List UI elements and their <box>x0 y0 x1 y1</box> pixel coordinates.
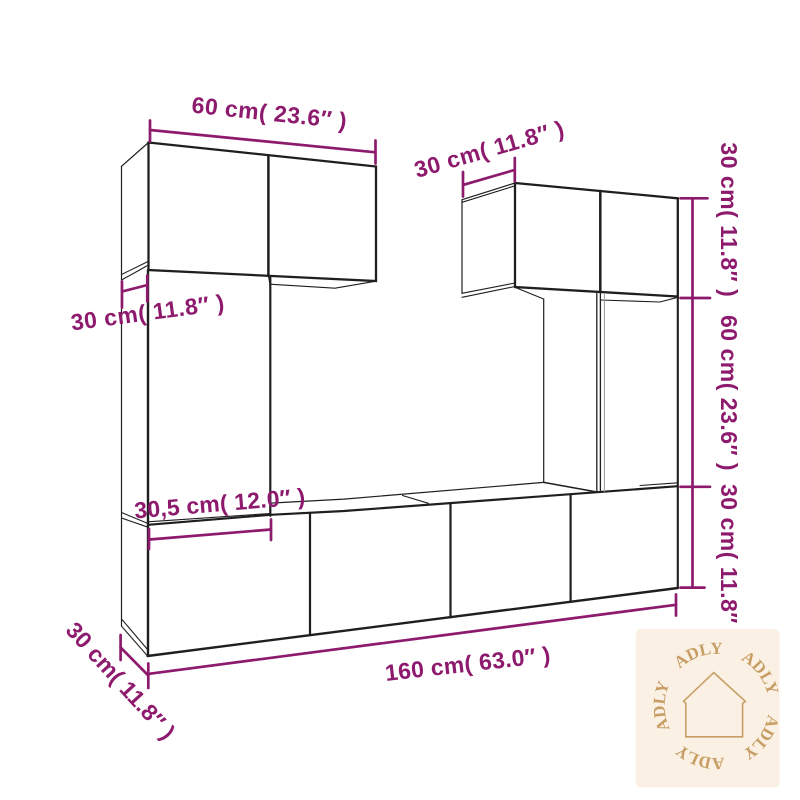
svg-text:160 cm( 63.0″ ): 160 cm( 63.0″ ) <box>384 641 552 686</box>
svg-text:30 cm( 11.8″ ): 30 cm( 11.8″ ) <box>716 142 742 297</box>
svg-text:30 cm( 11.8″ ): 30 cm( 11.8″ ) <box>411 115 567 183</box>
svg-text:60 cm( 23.6″ ): 60 cm( 23.6″ ) <box>716 315 742 471</box>
svg-text:30 cm( 11.8″ ): 30 cm( 11.8″ ) <box>716 484 742 639</box>
svg-text:60 cm( 23.6″ ): 60 cm( 23.6″ ) <box>190 92 348 134</box>
